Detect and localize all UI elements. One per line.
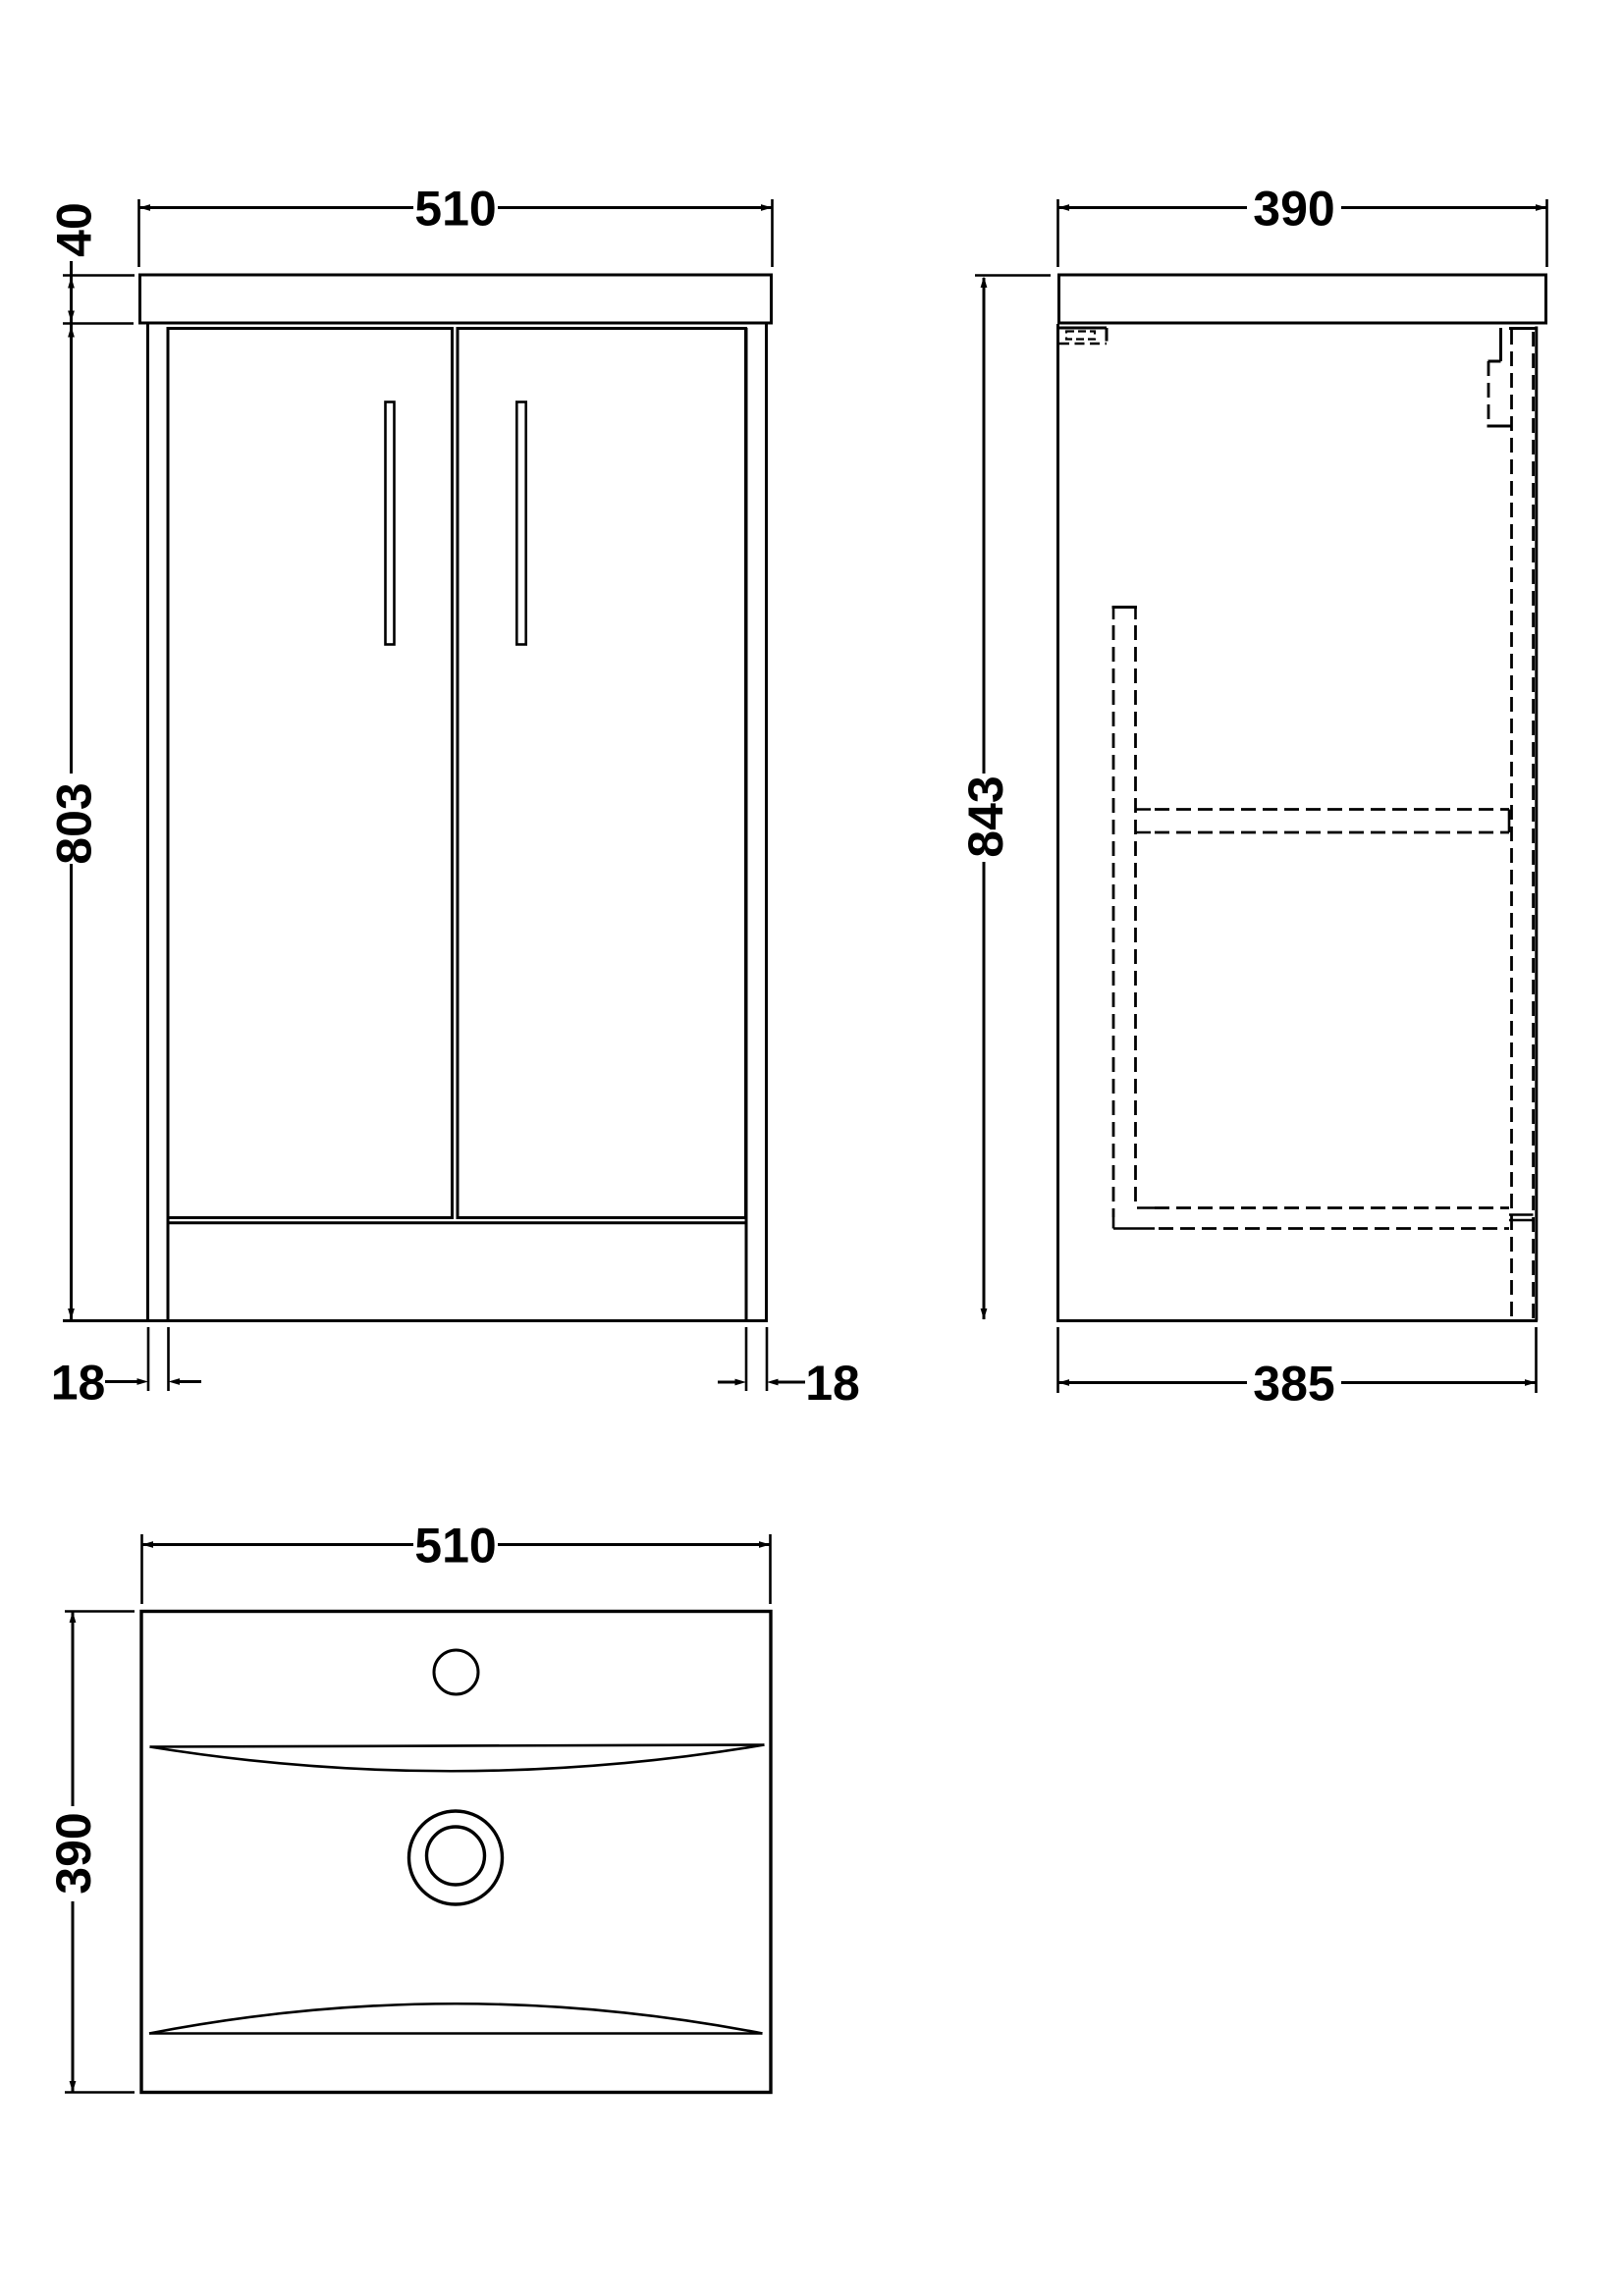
svg-text:18: 18 — [805, 1356, 860, 1411]
svg-text:385: 385 — [1253, 1357, 1334, 1412]
svg-text:390: 390 — [46, 1812, 101, 1894]
svg-text:843: 843 — [958, 775, 1013, 857]
svg-text:40: 40 — [47, 202, 102, 257]
svg-text:803: 803 — [47, 782, 102, 864]
svg-text:18: 18 — [51, 1356, 106, 1411]
svg-text:510: 510 — [414, 182, 496, 237]
svg-text:510: 510 — [414, 1519, 496, 1574]
svg-text:390: 390 — [1253, 182, 1334, 237]
